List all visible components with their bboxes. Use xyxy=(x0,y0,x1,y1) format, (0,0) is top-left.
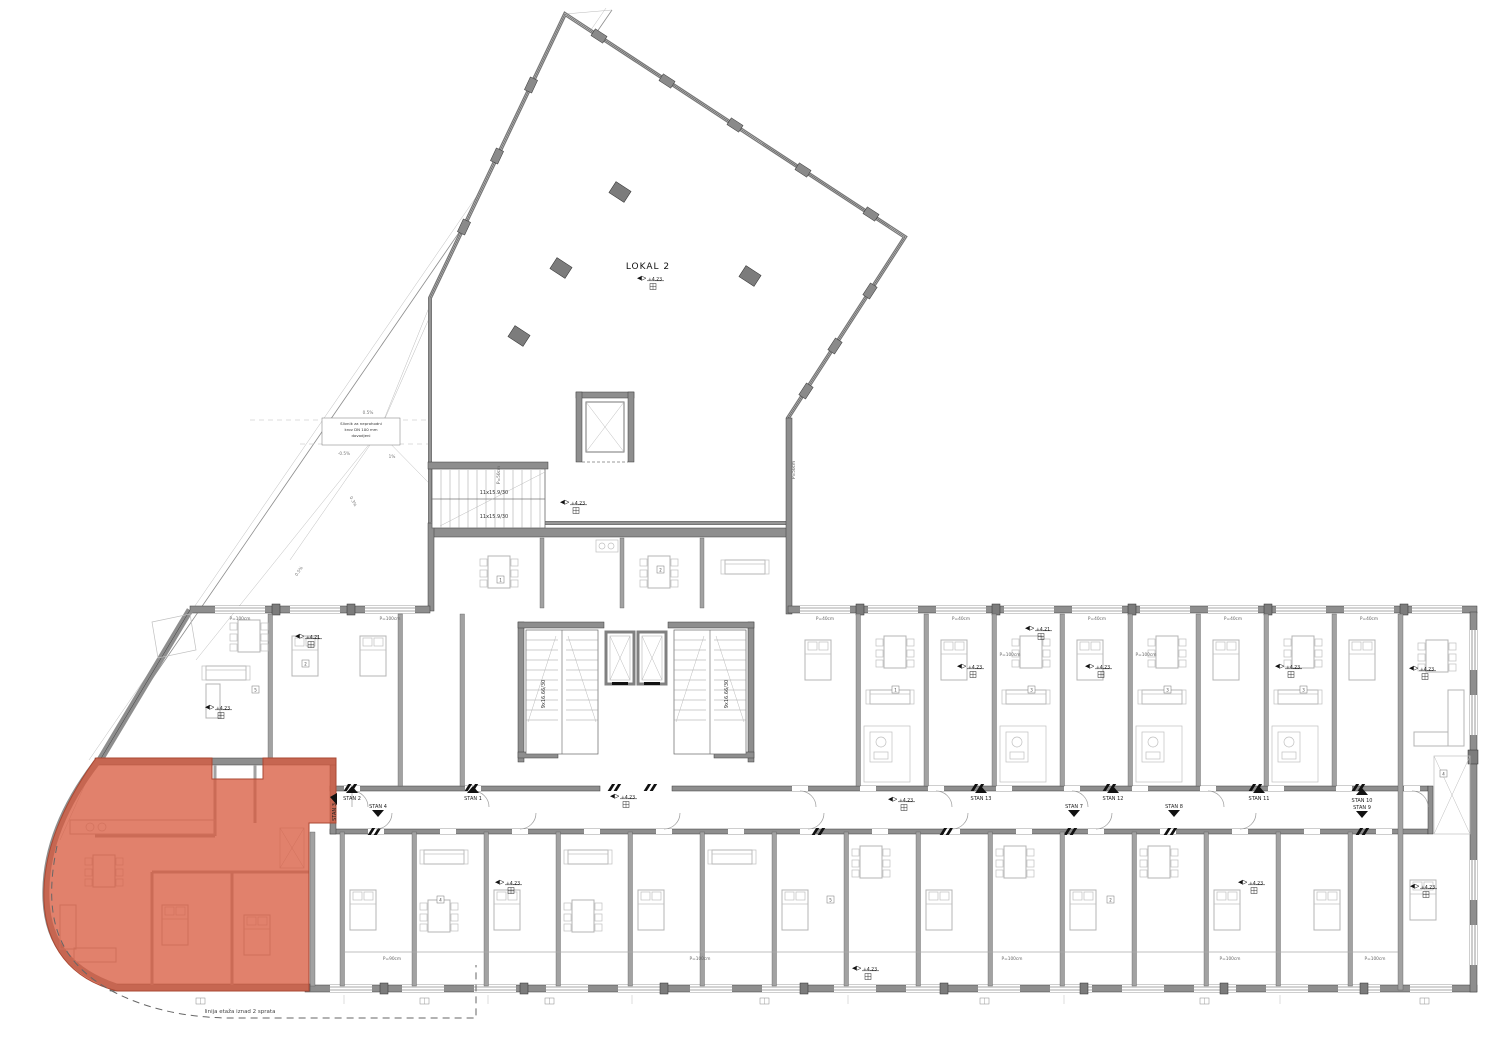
stan-2-label: STAN 2 xyxy=(343,796,361,802)
room-tag: 3 xyxy=(1030,688,1033,693)
floor-plan-sheet: Slivnik za neprohodni krov DN 100 mm dov… xyxy=(0,0,1500,1044)
hall-label: LOKAL 2 xyxy=(626,262,670,272)
room-tag: 5 xyxy=(254,688,257,693)
room-tag: 5 xyxy=(829,898,832,903)
room-tag: 2 xyxy=(659,568,662,573)
sill-label: P=100cm xyxy=(230,616,251,622)
lokal2-hall: LOKAL 2 +4.23 xyxy=(430,14,905,523)
window-sill-labels: P=40cm P=40cm P=40cm P=40cm P=40cm P=100… xyxy=(230,461,1386,962)
floor-plan-drawing: Slivnik za neprohodni krov DN 100 mm dov… xyxy=(0,0,1500,1044)
level-value: +4.23 xyxy=(968,665,982,671)
highlight-overlay xyxy=(44,758,336,991)
stan-13-label: STAN 13 xyxy=(971,796,992,802)
hall-level-value: +4.23 xyxy=(648,277,662,283)
stan-9-label: STAN 9 xyxy=(1353,805,1371,811)
stan-10-label: STAN 10 xyxy=(1352,798,1373,804)
slope-label-3: 1% xyxy=(389,454,396,459)
drain-note-line3: dovodjeni xyxy=(351,433,370,438)
level-value: +4.23 xyxy=(216,706,230,712)
level-value: +4.23 xyxy=(1286,665,1300,671)
drain-note-line2: krov DN 100 mm xyxy=(344,427,377,432)
level-value-alt: +4.21 xyxy=(306,635,320,641)
stan-3-label: STAN 3 xyxy=(332,803,338,821)
stan-7-label: STAN 7 xyxy=(1065,804,1083,810)
slope-label-1: 0.5% xyxy=(363,410,374,415)
stan-4-label: STAN 4 xyxy=(369,804,387,810)
sill-label: P=100cm xyxy=(1220,956,1241,962)
slope-label-5: 0.5% xyxy=(294,565,304,577)
level-value: +4.23 xyxy=(1249,881,1263,887)
room-tag: 2 xyxy=(1109,898,1112,903)
sill-label: P=40cm xyxy=(1088,616,1106,622)
stan-1-label: STAN 1 xyxy=(464,796,482,802)
sill-label: P=100cm xyxy=(1365,956,1386,962)
slope-label-4: 0.3% xyxy=(349,495,358,507)
level-value: +4.23 xyxy=(506,881,520,887)
room-tag: 2 xyxy=(304,662,307,667)
level-value: +4.23 xyxy=(863,967,877,973)
stair-core: 9x16.66/30 9x16.66/30 xyxy=(518,622,754,762)
sill-label: P=50cm xyxy=(496,466,502,484)
sill-label: P=40cm xyxy=(1360,616,1378,622)
highlight-level-marker: +4.23 xyxy=(205,705,232,719)
floor-line-label: linija etaža iznad 2 sprata xyxy=(205,1008,276,1015)
dimension-marks xyxy=(196,995,1429,1004)
sill-label: P=100cm xyxy=(1000,652,1021,658)
level-value: +4.23 xyxy=(899,798,913,804)
sill-label: P=90cm xyxy=(383,956,401,962)
level-value: +4.23 xyxy=(621,795,635,801)
core-stair-label-right: 9x16.66/30 xyxy=(724,680,730,709)
entrance-door-markers xyxy=(344,784,1370,835)
level-value: +4.23 xyxy=(1420,667,1434,673)
room-tag: 4 xyxy=(1442,772,1445,777)
sill-label: P=40cm xyxy=(952,616,970,622)
sill-label: P=40cm xyxy=(816,616,834,622)
sill-label: P=100cm xyxy=(690,956,711,962)
highlighted-apartment: +4.23 xyxy=(44,705,336,991)
sill-label: P=40cm xyxy=(1224,616,1242,622)
sill-label: P=100cm xyxy=(380,616,401,622)
sill-label: P=100cm xyxy=(1136,652,1157,658)
core-stair-label-left: 9x16.66/30 xyxy=(541,680,547,709)
drain-note-line1: Slivnik za neprohodni xyxy=(340,421,382,426)
level-value: +4.23 xyxy=(1421,885,1435,891)
sill-label: P=100cm xyxy=(1002,956,1023,962)
slope-label-2: -0.5% xyxy=(338,451,350,456)
room-tag: 3 xyxy=(1302,688,1305,693)
level-value: +4.23 xyxy=(1096,665,1110,671)
core-elevators xyxy=(606,632,666,685)
roof-drain-note: Slivnik za neprohodni krov DN 100 mm dov… xyxy=(322,418,400,445)
stan-11-label: STAN 11 xyxy=(1249,796,1270,802)
stair-run-label-2: 11x15.9/30 xyxy=(480,514,509,520)
upper-row-partitions xyxy=(268,614,1403,990)
room-tag: 1 xyxy=(499,578,502,583)
room-tag: 1 xyxy=(894,688,897,693)
facade-columns xyxy=(272,604,1478,994)
sill-label: P=50cm xyxy=(791,461,797,479)
level-value: +4.23 xyxy=(571,501,585,507)
room-tag: 4 xyxy=(439,898,442,903)
room-tag: 3 xyxy=(1166,688,1169,693)
level-value-alt: +4.21 xyxy=(1036,627,1050,633)
lower-row-partitions xyxy=(310,832,1398,986)
stair-run-label-1: 11x15.9/30 xyxy=(480,490,509,496)
stan-8-label: STAN 8 xyxy=(1165,804,1183,810)
stan-12-label: STAN 12 xyxy=(1103,796,1124,802)
